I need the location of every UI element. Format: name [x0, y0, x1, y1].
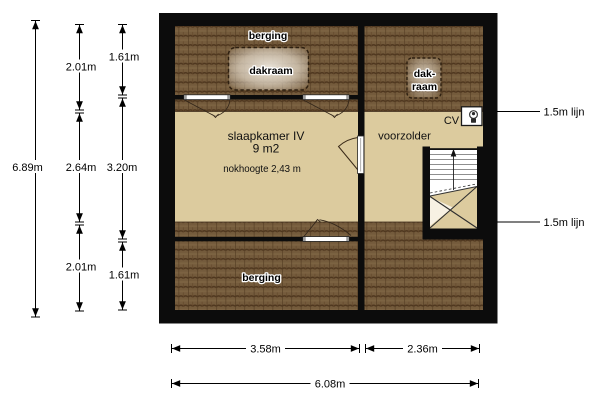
svg-text:6.89m: 6.89m: [12, 162, 43, 174]
svg-text:voorzolder: voorzolder: [378, 131, 431, 143]
svg-text:6.08m: 6.08m: [315, 379, 346, 391]
svg-text:1.61m: 1.61m: [109, 270, 140, 282]
svg-text:2.36m: 2.36m: [407, 344, 438, 356]
svg-text:berging: berging: [249, 30, 288, 42]
svg-text:1.5m lijn: 1.5m lijn: [544, 217, 585, 229]
svg-text:1.5m lijn: 1.5m lijn: [544, 107, 585, 119]
svg-text:2.01m: 2.01m: [66, 62, 97, 74]
svg-text:1.61m: 1.61m: [109, 52, 140, 64]
svg-text:nokhoogte 2,43 m: nokhoogte 2,43 m: [223, 164, 301, 175]
svg-text:9 m2: 9 m2: [253, 142, 280, 156]
svg-text:raam: raam: [412, 81, 437, 93]
svg-text:2.64m: 2.64m: [66, 162, 97, 174]
svg-text:dakraam: dakraam: [249, 65, 292, 77]
svg-text:3.20m: 3.20m: [107, 162, 138, 174]
svg-text:berging: berging: [242, 272, 281, 284]
svg-text:2.01m: 2.01m: [66, 262, 97, 274]
svg-text:3.58m: 3.58m: [250, 344, 281, 356]
svg-text:dak-: dak-: [414, 68, 436, 80]
svg-text:CV: CV: [444, 115, 460, 127]
